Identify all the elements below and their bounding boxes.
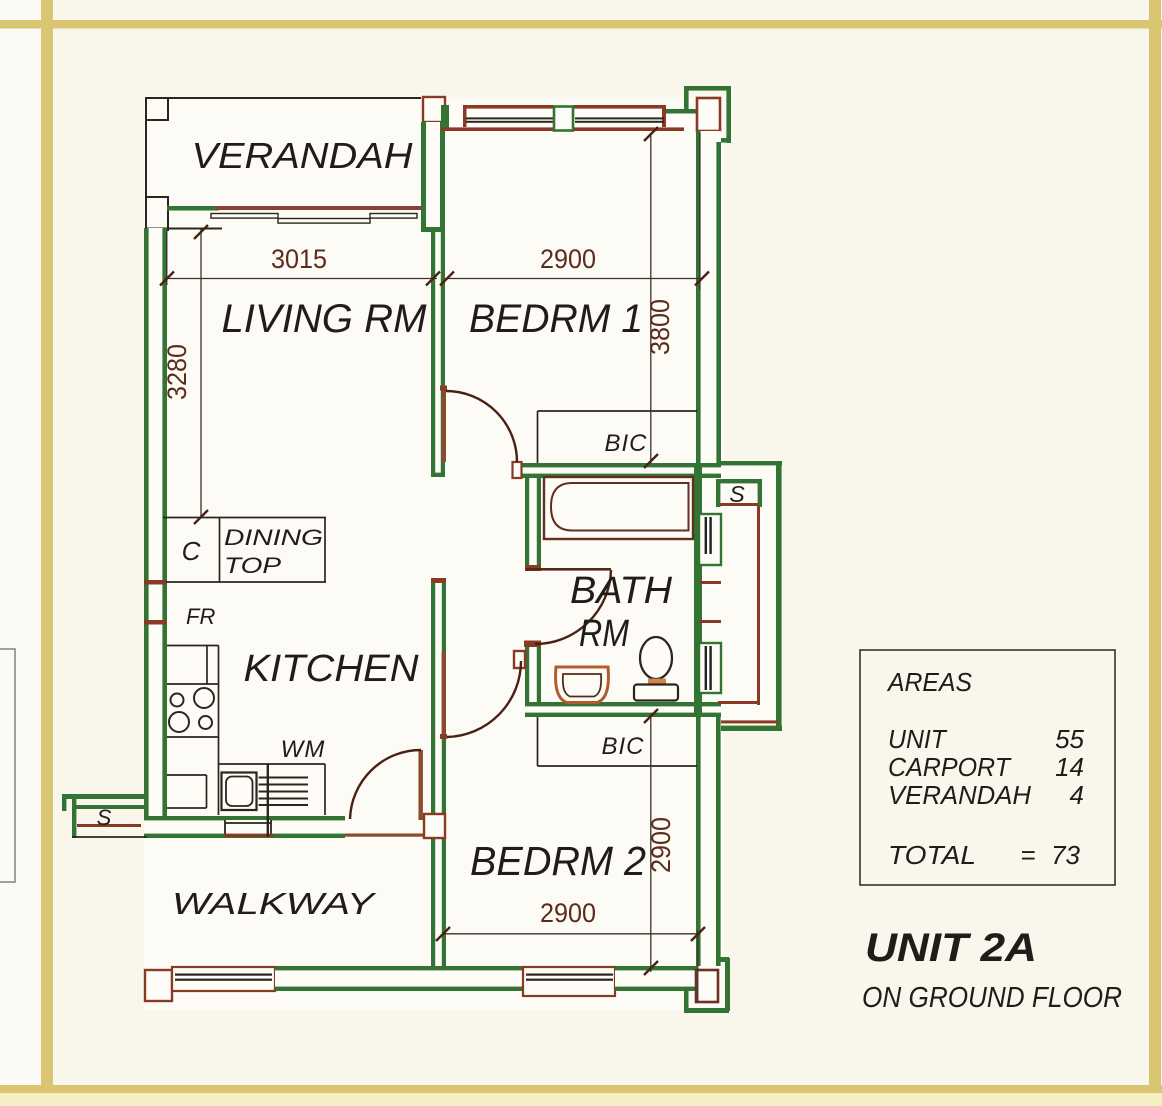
- svg-text:55: 55: [1055, 724, 1084, 754]
- svg-text:2900: 2900: [540, 244, 596, 274]
- svg-text:BATH: BATH: [570, 570, 673, 612]
- svg-text:ON GROUND FLOOR: ON GROUND FLOOR: [862, 982, 1122, 1014]
- svg-text:BEDRM 2: BEDRM 2: [470, 838, 646, 884]
- svg-text:LIVING RM: LIVING RM: [222, 297, 428, 341]
- svg-text:UNIT 2A: UNIT 2A: [865, 926, 1037, 970]
- svg-text:DINING: DINING: [224, 525, 323, 550]
- svg-text:S: S: [729, 481, 745, 507]
- svg-text:WM: WM: [281, 736, 326, 763]
- svg-text:2900: 2900: [646, 817, 676, 873]
- svg-text:FR: FR: [186, 604, 215, 629]
- svg-text:UNIT: UNIT: [888, 724, 948, 754]
- svg-text:3800: 3800: [645, 299, 675, 355]
- svg-text:BIC: BIC: [604, 430, 647, 457]
- svg-text:CARPORT: CARPORT: [888, 752, 1012, 782]
- svg-text:TOTAL: TOTAL: [888, 840, 976, 870]
- svg-text:VERANDAH: VERANDAH: [888, 780, 1031, 810]
- svg-text:AREAS: AREAS: [886, 667, 973, 697]
- svg-text:RM: RM: [579, 613, 629, 655]
- svg-text:WALKWAY: WALKWAY: [172, 886, 377, 921]
- svg-text:73: 73: [1051, 840, 1080, 870]
- svg-text:4: 4: [1070, 780, 1084, 810]
- svg-text:3015: 3015: [271, 244, 327, 274]
- svg-text:3280: 3280: [162, 344, 192, 400]
- svg-text:14: 14: [1055, 752, 1084, 782]
- svg-text:TOP: TOP: [224, 553, 281, 578]
- svg-text:2900: 2900: [540, 898, 596, 928]
- svg-text:VERANDAH: VERANDAH: [192, 135, 414, 176]
- svg-text:KITCHEN: KITCHEN: [244, 648, 420, 690]
- svg-text:BIC: BIC: [601, 733, 644, 760]
- svg-text:=: =: [1020, 840, 1035, 870]
- svg-text:BEDRM 1: BEDRM 1: [469, 297, 643, 341]
- svg-text:C: C: [182, 536, 201, 566]
- svg-text:S: S: [97, 805, 112, 830]
